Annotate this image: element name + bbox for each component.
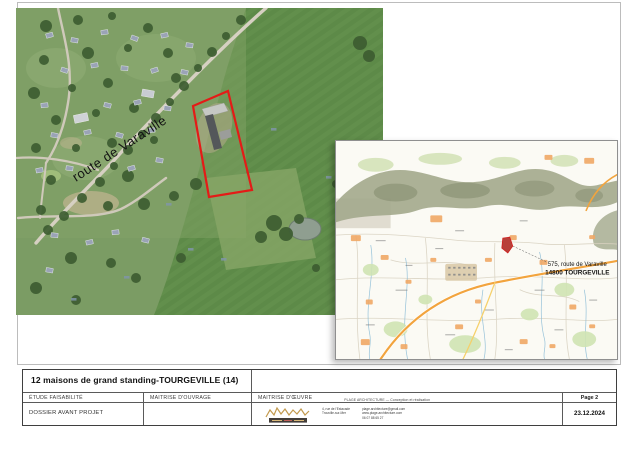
map-address-line2: 14800 TOURGEVILLE [545,269,609,276]
architect-cell: 4, rue de l'Estacade Trouville-sur-Mer p… [252,403,563,425]
architect-logo [264,405,312,424]
header-maitrise-oeuvre: MAITRISE D'ŒUVRE [258,395,312,401]
architect-address: 4, rue de l'Estacade Trouville-sur-Mer [322,405,350,416]
architect-firm-line: PLAGE ARCHITECTURE — Conception et réali… [344,395,430,402]
header-etude-faisabilite: ÉTUDE FAISABILITÉ [23,393,144,403]
architect-phone: 06 07 88 65 27 [362,416,405,420]
logo-banner-mark [272,420,282,421]
logo-banner-mark [284,420,292,421]
map-address-line1: 575, route de Varaville [548,262,608,268]
aerial-photo: route de Varaville [16,8,383,315]
page-number: Page 2 [563,393,616,403]
pond [289,218,321,240]
village-cluster [445,264,477,281]
header-maitrise-ouvrage: MAITRISE D'OUVRAGE [144,393,252,403]
document-page: route de Varaville [0,0,640,452]
architect-address-line2: Trouville-sur-Mer [322,411,350,415]
title-row-empty-cell [252,370,616,393]
maitrise-ouvrage-empty-cell [144,403,252,425]
architect-contact: plage.architecture@gmail.com www.plage-a… [362,405,405,420]
project-title: 12 maisons de grand standing-TOURGEVILLE… [23,370,252,393]
topo-map: 575, route de Varaville 14800 TOURGEVILL… [336,141,617,359]
header-maitrise-oeuvre-cell: MAITRISE D'ŒUVRE PLAGE ARCHITECTURE — Co… [252,393,563,403]
date-value: 23.12.2024 [563,403,616,425]
topo-map-inset: 575, route de Varaville 14800 TOURGEVILL… [335,140,618,360]
logo-skyline-icon [266,408,309,417]
logo-banner-mark [294,420,304,421]
title-block: 12 maisons de grand standing-TOURGEVILLE… [22,369,617,426]
phase-label: DOSSIER AVANT PROJET [23,403,144,425]
